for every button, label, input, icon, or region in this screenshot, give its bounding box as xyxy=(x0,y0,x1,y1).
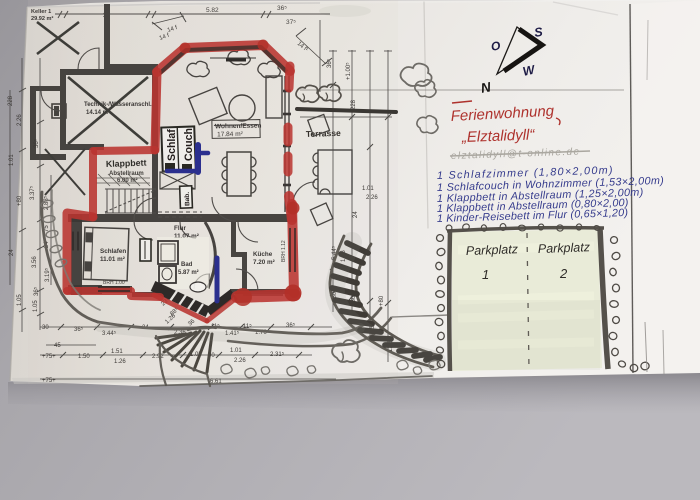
svg-text:+80: +80 xyxy=(379,295,385,306)
svg-text:1: 1 xyxy=(482,267,489,282)
svg-text:11.01 m²: 11.01 m² xyxy=(100,256,125,263)
svg-text:Klappbett: Klappbett xyxy=(106,158,147,169)
svg-text:Flur: Flur xyxy=(174,225,186,232)
svg-text:Wohnen/Essen: Wohnen/Essen xyxy=(215,123,262,131)
svg-text:1.26: 1.26 xyxy=(114,359,126,365)
svg-text:2.26: 2.26 xyxy=(234,358,246,364)
svg-text:36⁵: 36⁵ xyxy=(277,5,287,12)
svg-text:1.01: 1.01 xyxy=(230,348,242,354)
svg-text:Schlaf: Schlaf xyxy=(166,129,178,161)
svg-text:228: 228 xyxy=(351,99,357,110)
svg-text:Couch: Couch xyxy=(183,128,195,161)
svg-text:Küche: Küche xyxy=(253,251,273,258)
svg-text:5.82: 5.82 xyxy=(206,7,219,14)
svg-text:Parkplatz: Parkplatz xyxy=(466,242,519,258)
svg-text:2.26: 2.26 xyxy=(366,195,378,201)
svg-text:7.20 m²: 7.20 m² xyxy=(253,259,275,266)
svg-text:Bad: Bad xyxy=(181,262,193,268)
svg-text:1.05: 1.05 xyxy=(33,300,39,312)
svg-text:2.31⁵: 2.31⁵ xyxy=(270,351,285,358)
svg-text:2: 2 xyxy=(559,266,568,281)
svg-text:29.92 m²: 29.92 m² xyxy=(31,15,54,22)
svg-text:36⁵: 36⁵ xyxy=(74,326,84,333)
svg-text:1.51: 1.51 xyxy=(111,349,123,355)
svg-text:1.01: 1.01 xyxy=(362,186,374,192)
svg-text:Schlafen: Schlafen xyxy=(100,248,126,255)
svg-text:36⁵: 36⁵ xyxy=(286,322,296,329)
svg-text:Parkplatz: Parkplatz xyxy=(538,240,591,256)
svg-text:1.05: 1.05 xyxy=(17,294,23,306)
svg-text:+75+: +75+ xyxy=(42,354,56,360)
svg-text:Abstellraum: Abstellraum xyxy=(109,171,144,177)
svg-text:2.26: 2.26 xyxy=(17,114,23,126)
svg-text:45: 45 xyxy=(54,343,61,349)
svg-text:24: 24 xyxy=(9,249,15,256)
svg-text:1.01: 1.01 xyxy=(9,154,15,166)
svg-text:24: 24 xyxy=(353,211,359,218)
svg-text:37⁵: 37⁵ xyxy=(286,19,296,26)
svg-text:17.84 m²: 17.84 m² xyxy=(217,131,244,138)
svg-text:3.37⁵: 3.37⁵ xyxy=(29,185,36,200)
svg-text:Keller 1: Keller 1 xyxy=(31,9,51,15)
svg-text:2.92: 2.92 xyxy=(152,354,164,360)
svg-text:36⁵: 36⁵ xyxy=(33,138,40,148)
svg-text:36⁵: 36⁵ xyxy=(33,286,40,296)
svg-text:3.19⁵: 3.19⁵ xyxy=(44,267,51,282)
svg-text:30: 30 xyxy=(42,325,49,331)
svg-text:1.50: 1.50 xyxy=(78,354,90,360)
svg-text:Bab.: Bab. xyxy=(184,192,191,207)
svg-text:+1.00⁵: +1.00⁵ xyxy=(345,62,352,80)
svg-text:228: 228 xyxy=(8,95,14,106)
svg-text:5.87 m²: 5.87 m² xyxy=(178,269,199,276)
svg-text:6.00 m²: 6.00 m² xyxy=(117,177,138,184)
svg-text:„Elztalidyll“: „Elztalidyll“ xyxy=(461,126,536,146)
svg-text:BRH 1.12: BRH 1.12 xyxy=(281,240,287,262)
svg-text:3.56: 3.56 xyxy=(32,256,38,268)
svg-text:36⁵: 36⁵ xyxy=(326,58,333,68)
svg-text:+80: +80 xyxy=(17,195,23,206)
svg-text:+75+: +75+ xyxy=(42,378,56,384)
